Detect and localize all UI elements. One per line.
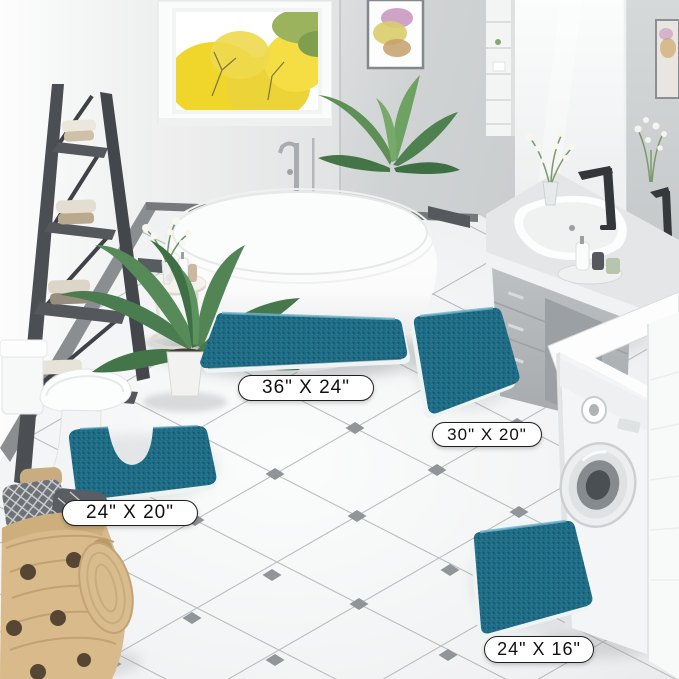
shelf-tower	[486, 0, 515, 136]
scene-illustration	[0, 0, 679, 679]
right-cabinet	[648, 312, 679, 679]
size-label-30x20: 30" X 20"	[432, 422, 542, 447]
wall-art-frame	[368, 0, 423, 68]
window-sill	[158, 118, 332, 126]
rug-36x24	[200, 313, 410, 373]
window	[158, 1, 340, 126]
product-photo-bathroom-rug-set: 36" X 24" 30" X 20" 24" X 20" 24" X 16"	[0, 0, 679, 679]
size-label-24x20: 24" X 20"	[62, 500, 198, 526]
size-label-24x16: 24" X 16"	[484, 636, 594, 663]
size-label-36x24: 36" X 24"	[238, 375, 374, 401]
plant-pot	[167, 352, 203, 396]
